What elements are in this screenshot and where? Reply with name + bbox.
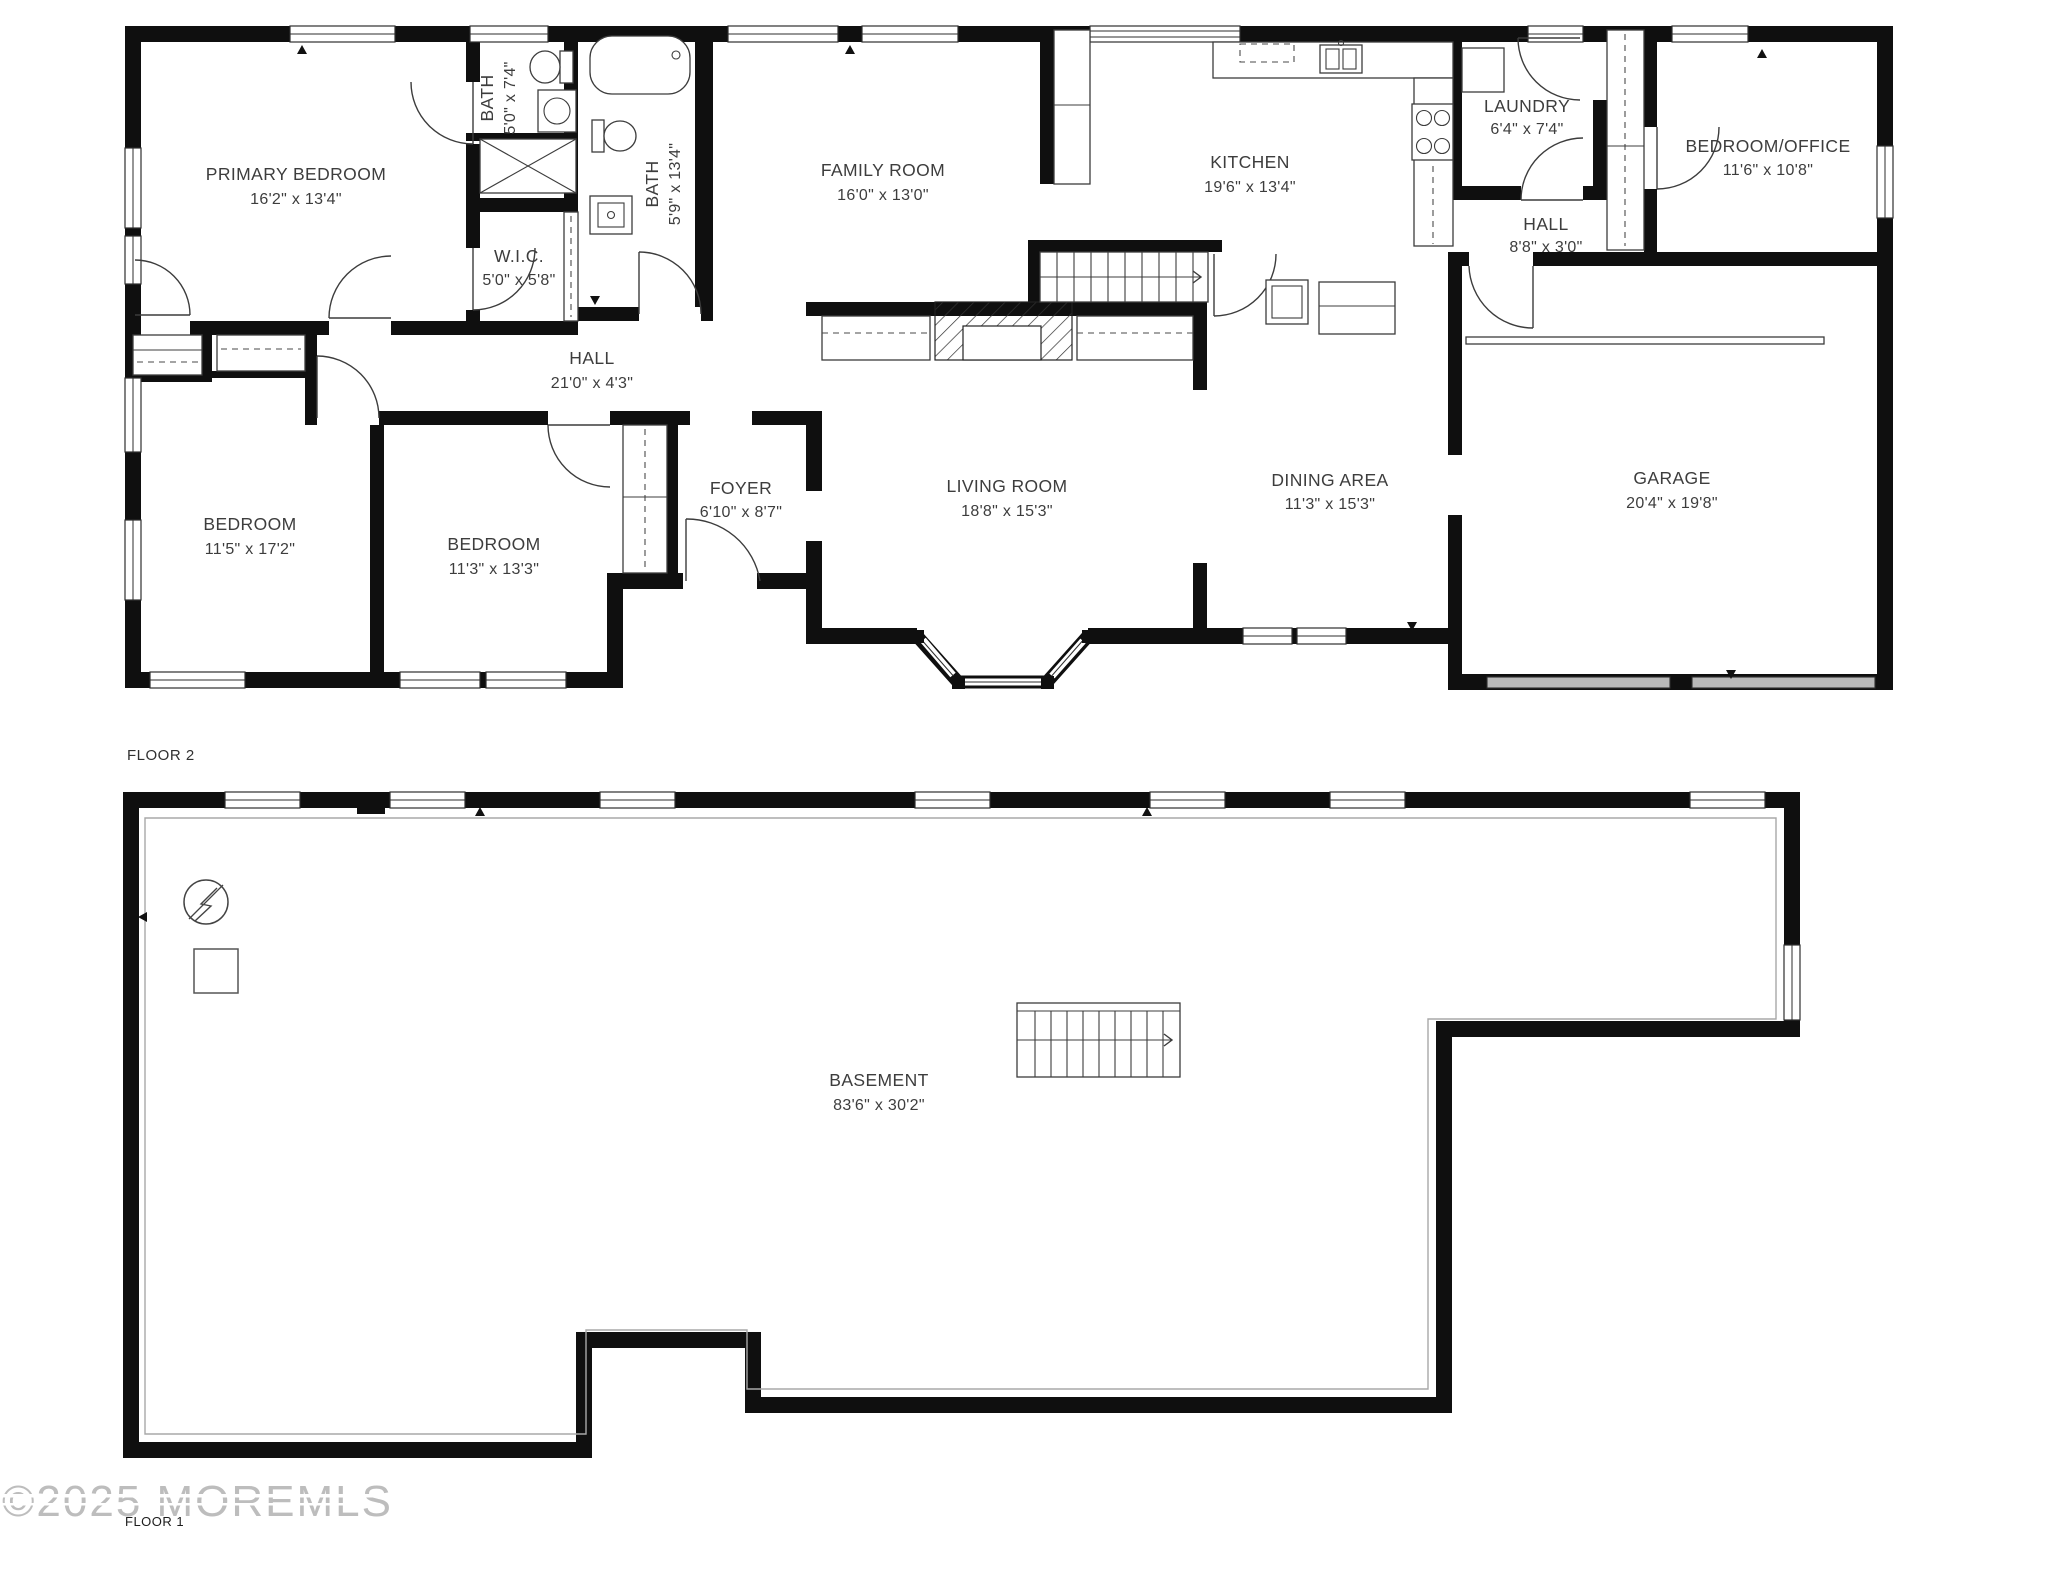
- entry-door-arc: [686, 519, 760, 581]
- room-dims-hall-long: 21'0" x 4'3": [551, 375, 633, 392]
- room-label-bath2: BATH: [642, 161, 662, 208]
- garage-door-track: [1466, 337, 1824, 344]
- toilet: [530, 51, 560, 83]
- room-dims-hall-small: 8'8" x 3'0": [1509, 239, 1582, 256]
- basement-walls: [131, 800, 1792, 1450]
- room-dims-kitchen: 19'6" x 13'4": [1204, 179, 1296, 196]
- room-label-basement: BASEMENT: [829, 1070, 928, 1090]
- watermark-stencil-slit: [0, 1494, 380, 1498]
- room-label-garage: GARAGE: [1633, 468, 1710, 488]
- room-dims-primary-bedroom: 16'2" x 13'4": [250, 191, 342, 208]
- room-dims-bedroom-office: 11'6" x 10'8": [1723, 162, 1813, 179]
- room-label-hall-small: HALL: [1523, 214, 1568, 234]
- room-dims-bath2: 5'9" x 13'4": [667, 143, 684, 225]
- stairs-floor1: [1040, 252, 1208, 302]
- room-dims-bath1: 5'0" x 7'4": [502, 61, 519, 134]
- room-label-living-room: LIVING ROOM: [946, 476, 1067, 496]
- room-label-bedroom-1: BEDROOM: [203, 514, 296, 534]
- room-dims-bedroom-2: 11'3" x 13'3": [449, 561, 539, 578]
- floorplan-drawing: PRIMARY BEDROOM 16'2" x 13'4" BATH 5'0" …: [0, 0, 2052, 1572]
- room-label-dining-area: DINING AREA: [1271, 470, 1388, 490]
- room-label-foyer: FOYER: [710, 478, 772, 498]
- stairs-basement: [1017, 1003, 1180, 1077]
- room-label-kitchen: KITCHEN: [1210, 152, 1290, 172]
- washer: [1462, 48, 1504, 92]
- room-label-family-room: FAMILY ROOM: [821, 160, 945, 180]
- room-dims-bedroom-1: 11'5" x 17'2": [205, 541, 295, 558]
- family-room-closet: [1054, 30, 1090, 184]
- bathtub: [590, 36, 690, 94]
- room-label-bedroom-2: BEDROOM: [447, 534, 540, 554]
- room-label-bath1: BATH: [477, 75, 497, 122]
- toilet-tank: [560, 51, 573, 83]
- room-label-laundry: LAUNDRY: [1484, 96, 1570, 116]
- floor1-plan: PRIMARY BEDROOM 16'2" x 13'4" BATH 5'0" …: [125, 26, 1893, 690]
- room-dims-foyer: 6'10" x 8'7": [700, 504, 782, 521]
- room-dims-family-room: 16'0" x 13'0": [837, 187, 929, 204]
- sink-vanity: [590, 196, 632, 234]
- garage-doors: [1466, 337, 1875, 688]
- room-label-wic: W.I.C.: [494, 246, 544, 266]
- room-dims-garage: 20'4" x 19'8": [1626, 495, 1718, 512]
- basement-plan: BASEMENT 83'6" x 30'2": [131, 792, 1800, 1450]
- bay-window: [911, 630, 1095, 689]
- room-label-hall-long: HALL: [569, 348, 614, 368]
- kitchen-island: [1319, 282, 1395, 334]
- room-dims-basement: 83'6" x 30'2": [833, 1097, 925, 1114]
- mls-watermark: ©2025 MOREMLS: [2, 1477, 393, 1526]
- room-dims-living-room: 18'8" x 15'3": [961, 503, 1053, 520]
- toilet-tank: [592, 120, 604, 152]
- room-label-primary-bedroom: PRIMARY BEDROOM: [206, 164, 386, 184]
- room-dims-laundry: 6'4" x 7'4": [1490, 121, 1563, 138]
- toilet: [604, 121, 636, 151]
- room-dims-dining-area: 11'3" x 15'3": [1285, 496, 1375, 513]
- watermark-stencil-slit: [0, 1503, 380, 1506]
- floor2-caption: FLOOR 2: [127, 747, 195, 764]
- floor1-caption: FLOOR 1: [125, 1514, 184, 1529]
- footer-area: ©2025 MOREMLS FLOOR 1: [0, 1477, 393, 1529]
- utility-box: [194, 949, 238, 993]
- room-dims-wic: 5'0" x 5'8": [482, 272, 555, 289]
- room-label-bedroom-office: BEDROOM/OFFICE: [1685, 136, 1850, 156]
- floorplan-page: PRIMARY BEDROOM 16'2" x 13'4" BATH 5'0" …: [0, 0, 2052, 1572]
